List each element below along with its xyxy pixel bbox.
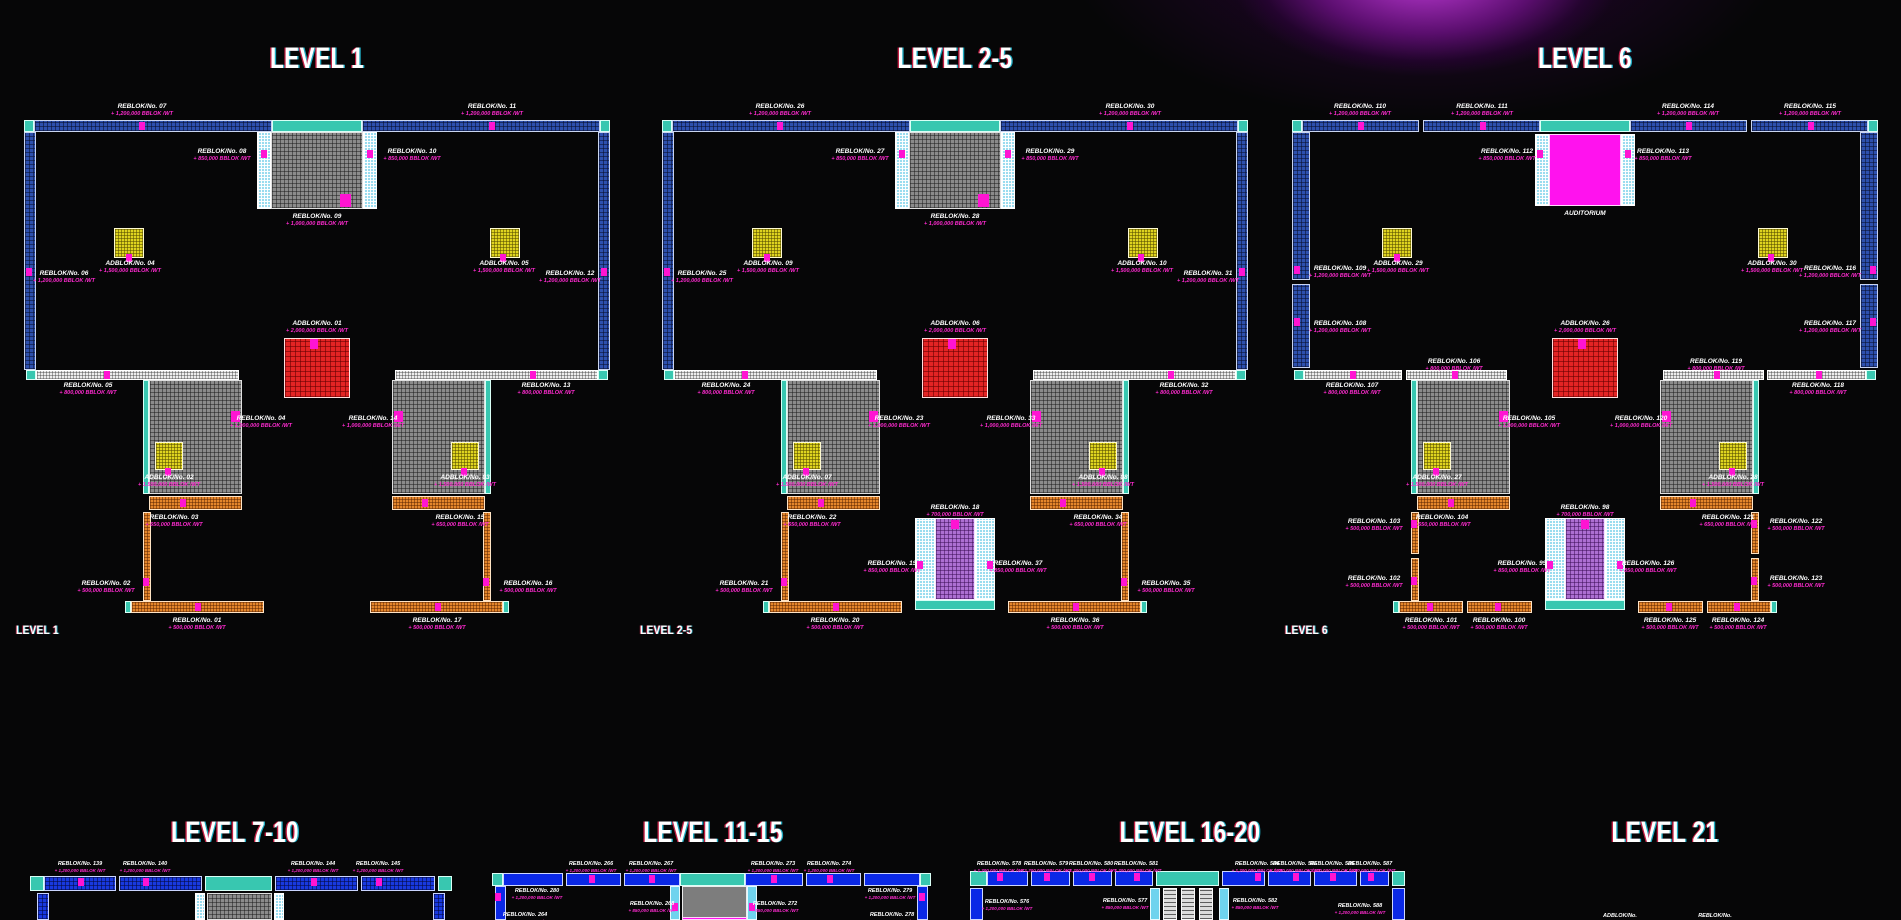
block-label: REBLOK/No. 101+ 500,000 BBLOK /WT [1371, 617, 1491, 632]
seat-block[interactable] [257, 132, 271, 209]
seat-block[interactable] [274, 893, 284, 920]
block-label-name: REBLOK/No. 98 [1525, 504, 1645, 512]
block-label: REBLOK/No. 145+ 1,200,000 BBLOK /WT [318, 861, 438, 874]
block-label-price: + 1,200,000 BBLOK /WT [82, 111, 202, 118]
block-label-name: REBLOK/No. 579 [986, 861, 1106, 868]
block-label-price: + 500,000 BBLOK /WT [1439, 625, 1559, 632]
seat-block[interactable] [1089, 442, 1117, 470]
marker-dot [777, 122, 783, 130]
marker-dot [1427, 603, 1433, 611]
block-label-name: REBLOK/No. 101 [1371, 617, 1491, 625]
block-label: ADBLOK/No. 26+ 2,000,000 BBLOK /WT [1525, 320, 1645, 335]
block-label: REBLOK/No. 111+ 1,200,000 BBLOK /WT [1422, 103, 1542, 118]
floorplan-level-1: REBLOK/No. 07+ 1,200,000 BBLOK /WTREBLOK… [24, 120, 610, 620]
seat-block[interactable] [598, 370, 608, 380]
block-label: REBLOK/No. 144+ 1,200,000 BBLOK /WT [253, 861, 373, 874]
seat-block[interactable] [1030, 496, 1123, 510]
marker-dot [26, 268, 32, 276]
seat-block[interactable] [363, 132, 377, 209]
block-label: REBLOK/No. 05+ 800,000 BBLOK /WT [28, 382, 148, 397]
block-label-name: REBLOK/No. 07 [82, 103, 202, 111]
block-label: REBLOK/No. [1655, 913, 1775, 920]
seat-block[interactable] [155, 442, 183, 470]
marker-dot [1099, 468, 1105, 476]
block-label: REBLOK/No. 11+ 1,200,000 BBLOK /WT [432, 103, 552, 118]
block-label-price: + 1,500,000 BBLOK /WT [1338, 268, 1458, 275]
block-label-price: + 500,000 BBLOK /WT [1610, 625, 1730, 632]
block-label: AUDITORIUM [1525, 210, 1645, 218]
seat-block[interactable] [1150, 888, 1160, 920]
marker-dot [771, 875, 777, 883]
marker-dot [1808, 122, 1814, 130]
block-label: ADBLOK/No. 29+ 1,500,000 BBLOK /WT [1338, 260, 1458, 275]
seat-block[interactable] [1199, 888, 1213, 920]
seat-block[interactable] [1660, 496, 1753, 510]
seat-block[interactable] [1238, 120, 1248, 132]
seat-block[interactable] [207, 893, 272, 920]
seat-block[interactable] [1031, 871, 1070, 886]
block-label-price: + 1,200,000 BBLOK /WT [1148, 278, 1268, 285]
seat-block[interactable] [1219, 888, 1229, 920]
seat-block[interactable] [119, 876, 202, 891]
marker-dot [1666, 603, 1672, 611]
block-label-name: REBLOK/No. 580 [1031, 861, 1151, 868]
marker-dot [649, 875, 655, 883]
seat-block[interactable] [1868, 120, 1878, 132]
marker-dot [1411, 577, 1417, 585]
seat-block[interactable] [1001, 132, 1015, 209]
seat-block[interactable] [1123, 380, 1129, 494]
seat-block[interactable] [495, 886, 506, 920]
seat-block[interactable] [935, 518, 975, 600]
seat-block[interactable] [1545, 518, 1565, 600]
seat-block[interactable] [1033, 370, 1236, 380]
seat-block[interactable] [1565, 518, 1605, 600]
seat-block[interactable] [361, 876, 435, 891]
seat-block[interactable] [485, 380, 491, 494]
seat-block[interactable] [1156, 871, 1219, 886]
block-label-price: + 800,000 BBLOK /WT [28, 390, 148, 397]
block-label: REBLOK/No. 26+ 1,200,000 BBLOK /WT [720, 103, 840, 118]
marker-dot [1411, 520, 1417, 528]
marker-dot [1005, 150, 1011, 158]
seat-block[interactable] [1621, 134, 1635, 206]
block-label-name: REBLOK/No. 266 [531, 861, 651, 868]
marker-dot [165, 468, 171, 476]
block-label-name: REBLOK/No. 36 [1015, 617, 1135, 625]
marker-dot [435, 603, 441, 611]
block-label-price: + 500,000 BBLOK /WT [775, 625, 895, 632]
seat-block[interactable] [1549, 134, 1621, 206]
marker-dot [1127, 122, 1133, 130]
block-label-name: REBLOK/No. 274 [769, 861, 889, 868]
seat-block[interactable] [1417, 496, 1510, 510]
seat-block[interactable] [1000, 120, 1238, 132]
block-label-name: REBLOK/No. 11 [432, 103, 552, 111]
block-label: REBLOK/No. 12+ 1,200,000 BBLOK /WT [510, 270, 630, 285]
floorplan-level-7-10: REBLOK/No. 139+ 1,200,000 BBLOK /WTREBLO… [30, 861, 455, 920]
seat-block[interactable] [1417, 380, 1510, 494]
marker-dot [1499, 411, 1508, 422]
seat-block[interactable] [864, 873, 920, 886]
seat-block[interactable] [1392, 888, 1405, 920]
seat-block[interactable] [1181, 888, 1195, 920]
block-label-price: + 1,500,000 BBLOK /WT [70, 268, 190, 275]
block-label: REBLOK/No. 576+ 1,200,000 BBLOK /WT [947, 899, 1067, 912]
block-label-name: REBLOK/No. 31 [1148, 270, 1268, 278]
marker-dot [143, 878, 149, 886]
seat-block[interactable] [149, 380, 242, 494]
marker-dot [180, 499, 186, 507]
block-label: REBLOK/No. 124+ 500,000 BBLOK /WT [1678, 617, 1798, 632]
marker-dot [126, 254, 132, 262]
marker-dot [143, 578, 149, 586]
seat-block[interactable] [1292, 284, 1310, 368]
marker-dot [1368, 873, 1374, 881]
seat-block[interactable] [987, 871, 1028, 886]
seat-block[interactable] [1751, 512, 1759, 554]
block-label-price: + 1,200,000 BBLOK /WT [1628, 111, 1748, 118]
marker-dot [1121, 578, 1127, 586]
marker-dot [500, 254, 506, 262]
marker-dot [1870, 318, 1876, 326]
block-label-name: REBLOK/No. [1655, 913, 1775, 920]
marker-dot [827, 875, 833, 883]
block-label: REBLOK/No. 278+ 1,200,000 BBLOK /WT [832, 912, 952, 920]
seat-block[interactable] [787, 380, 880, 494]
block-label-name: REBLOK/No. 111 [1422, 103, 1542, 111]
seat-block[interactable] [975, 518, 995, 600]
marker-dot [781, 578, 787, 586]
block-label-name: REBLOK/No. 121 [1668, 514, 1788, 522]
block-label-price: + 1,200,000 BBLOK /WT [20, 868, 140, 874]
seat-block[interactable] [1268, 871, 1311, 886]
marker-dot [1547, 561, 1553, 569]
seat-block[interactable] [793, 442, 821, 470]
block-label-price: + 500,000 BBLOK /WT [1678, 625, 1798, 632]
block-label-price: + 1,500,000 BBLOK /WT [708, 268, 828, 275]
seat-block[interactable] [195, 893, 205, 920]
marker-dot [1168, 371, 1174, 379]
marker-dot [1394, 254, 1400, 262]
seat-block[interactable] [395, 370, 598, 380]
marker-dot [1537, 150, 1543, 158]
block-label: REBLOK/No. 125+ 500,000 BBLOK /WT [1610, 617, 1730, 632]
block-label-name: REBLOK/No. 17 [377, 617, 497, 625]
block-label: ADBLOK/No. 09+ 1,500,000 BBLOK /WT [708, 260, 828, 275]
seat-block[interactable] [1605, 518, 1625, 600]
block-label-name: REBLOK/No. 264 [465, 912, 585, 919]
block-label-price: + 500,000 BBLOK /WT [137, 625, 257, 632]
block-label-price: + 800,000 BBLOK /WT [666, 390, 786, 397]
block-label-name: REBLOK/No. 12 [510, 270, 630, 278]
floorplan-level-2-5: REBLOK/No. 26+ 1,200,000 BBLOK /WTREBLOK… [662, 120, 1248, 620]
block-label-price: + 1,200,000 BBLOK /WT [253, 868, 373, 874]
marker-dot [1729, 468, 1735, 476]
block-label-price: + 1,200,000 BBLOK /WT [1750, 111, 1870, 118]
marker-dot [764, 254, 770, 262]
block-label-name: REBLOK/No. 28 [895, 213, 1015, 221]
seat-block[interactable] [1753, 380, 1759, 494]
level-title: LEVEL 7-10 [171, 816, 299, 850]
seat-block[interactable] [483, 512, 491, 601]
seat-block[interactable] [24, 120, 34, 132]
block-label-name: REBLOK/No. 114 [1628, 103, 1748, 111]
seat-block[interactable] [26, 370, 36, 380]
marker-dot [311, 878, 317, 886]
seat-block[interactable] [806, 873, 861, 886]
seat-block[interactable] [1535, 134, 1549, 206]
seat-block[interactable] [600, 120, 610, 132]
block-label-name: REBLOK/No. 144 [253, 861, 373, 868]
seat-block[interactable] [1236, 370, 1246, 380]
seat-block[interactable] [1392, 871, 1405, 886]
marker-dot [1138, 254, 1144, 262]
block-label-name: REBLOK/No. 267 [591, 861, 711, 868]
block-label-name: REBLOK/No. 119 [1656, 358, 1776, 366]
seat-block[interactable] [1292, 132, 1310, 280]
block-label-price: + 500,000 BBLOK /WT [1015, 625, 1135, 632]
block-label: REBLOK/No. 30+ 1,200,000 BBLOK /WT [1070, 103, 1190, 118]
seat-block[interactable] [1423, 442, 1451, 470]
marker-dot [997, 873, 1003, 881]
seat-block[interactable] [1236, 132, 1248, 370]
marker-dot [589, 875, 595, 883]
block-label-name: REBLOK/No. 32 [1124, 382, 1244, 390]
seat-block[interactable] [787, 496, 880, 510]
marker-dot [869, 411, 878, 422]
marker-dot [1358, 122, 1364, 130]
block-label-price: + 1,500,000 BBLOK /WT [1082, 268, 1202, 275]
block-label: REBLOK/No. 28+ 1,000,000 BBLOK /WT [895, 213, 1015, 228]
seat-block[interactable] [34, 120, 272, 132]
block-label-name: REBLOK/No. 584 [1197, 861, 1317, 868]
marker-dot [139, 122, 145, 130]
marker-dot [1448, 499, 1454, 507]
seat-block[interactable] [920, 873, 931, 886]
marker-dot [261, 150, 267, 158]
seat-block[interactable] [915, 518, 935, 600]
block-label-name: REBLOK/No. 15 [400, 514, 520, 522]
seat-block[interactable] [205, 876, 272, 891]
block-label: REBLOK/No. 18+ 700,000 BBLOK /WT [895, 504, 1015, 519]
block-label-price: + 500,000 BBLOK /WT [1371, 625, 1491, 632]
block-label-name: REBLOK/No. 25 [642, 270, 762, 278]
block-label: REBLOK/No. 115+ 1,200,000 BBLOK /WT [1750, 103, 1870, 118]
floorplan-level-6: REBLOK/No. 110+ 1,200,000 BBLOK /WTREBLO… [1292, 120, 1878, 620]
block-label: ADBLOK/No. 06+ 2,000,000 BBLOK /WT [895, 320, 1015, 335]
block-label-name: REBLOK/No. 06 [4, 270, 124, 278]
block-label-name: REBLOK/No. 278 [832, 912, 952, 919]
marker-dot [78, 878, 84, 886]
block-label-price: + 1,500,000 BBLOK /WT [444, 268, 564, 275]
marker-dot [310, 339, 318, 349]
seat-block[interactable] [1660, 380, 1753, 494]
marker-dot [818, 499, 824, 507]
block-label-price: + 1,200,000 BBLOK /WT [85, 868, 205, 874]
block-label-price: + 1,200,000 BBLOK /WT [1422, 111, 1542, 118]
marker-dot [664, 268, 670, 276]
corner-level-label: LEVEL 2-5 [640, 624, 692, 637]
block-label-price: + 1,200,000 BBLOK /WT [4, 278, 124, 285]
block-label-name: REBLOK/No. 13 [486, 382, 606, 390]
seat-block[interactable] [910, 120, 1000, 132]
seat-block[interactable] [895, 132, 909, 209]
seat-block[interactable] [24, 132, 36, 370]
seat-block[interactable] [503, 601, 509, 613]
marker-dot [1073, 603, 1079, 611]
block-label-price: + 800,000 BBLOK /WT [1758, 390, 1878, 397]
seat-block[interactable] [915, 600, 995, 610]
block-label: REBLOK/No. 20+ 500,000 BBLOK /WT [775, 617, 895, 632]
block-label: ADBLOK/No. 30+ 1,500,000 BBLOK /WT [1712, 260, 1832, 275]
marker-dot [1751, 577, 1757, 585]
seat-block[interactable] [598, 132, 610, 370]
marker-dot [1734, 603, 1740, 611]
block-label: REBLOK/No. 17+ 500,000 BBLOK /WT [377, 617, 497, 632]
marker-dot [461, 468, 467, 476]
seat-block[interactable] [392, 496, 485, 510]
marker-dot [749, 903, 755, 911]
marker-dot [1581, 520, 1589, 529]
marker-dot [1032, 411, 1041, 422]
seat-block[interactable] [781, 512, 789, 601]
marker-dot [601, 268, 607, 276]
seat-block[interactable] [1540, 120, 1630, 132]
block-label: REBLOK/No. 264+ 1,200,000 BBLOK /WT [465, 912, 585, 920]
seat-block[interactable] [272, 120, 362, 132]
marker-dot [1255, 873, 1261, 881]
block-label-price: + 800,000 BBLOK /WT [1292, 390, 1412, 397]
block-label-price: + 650,000 BBLOK /WT [1668, 522, 1788, 529]
block-label-name: REBLOK/No. 01 [137, 617, 257, 625]
block-label: REBLOK/No. 13+ 800,000 BBLOK /WT [486, 382, 606, 397]
block-label-price: + 650,000 BBLOK /WT [114, 522, 234, 529]
seat-block[interactable] [143, 512, 151, 601]
marker-dot [919, 893, 925, 901]
block-label-price: + 1,200,000 BBLOK /WT [947, 906, 1067, 912]
block-label: REBLOK/No. 118+ 800,000 BBLOK /WT [1758, 382, 1878, 397]
block-label-name: REBLOK/No. 106 [1394, 358, 1514, 366]
seat-block[interactable] [674, 370, 877, 380]
block-label-name: REBLOK/No. 139 [20, 861, 140, 868]
seat-block[interactable] [970, 871, 987, 886]
seat-block[interactable] [451, 442, 479, 470]
marker-dot [948, 339, 956, 349]
seat-block[interactable] [433, 893, 445, 920]
seat-block[interactable] [1294, 370, 1304, 380]
seat-block[interactable] [492, 873, 503, 886]
seat-block[interactable] [970, 888, 983, 920]
seat-block[interactable] [680, 873, 745, 886]
seat-block[interactable] [1411, 512, 1419, 554]
block-label-name: REBLOK/No. 18 [895, 504, 1015, 512]
block-label: ADBLOK/No. [1560, 913, 1680, 920]
seat-block[interactable] [392, 380, 485, 494]
seat-block[interactable] [1545, 600, 1625, 610]
marker-dot [1617, 561, 1623, 569]
block-label-name: ADBLOK/No. 06 [895, 320, 1015, 328]
marker-dot [1294, 266, 1300, 274]
seat-block[interactable] [917, 886, 928, 920]
block-label-name: REBLOK/No. 107 [1292, 382, 1412, 390]
block-label: REBLOK/No. 09+ 1,000,000 BBLOK /WT [257, 213, 377, 228]
block-label: REBLOK/No. 114+ 1,200,000 BBLOK /WT [1628, 103, 1748, 118]
seat-block[interactable] [438, 876, 452, 891]
block-label: REBLOK/No. 01+ 500,000 BBLOK /WT [137, 617, 257, 632]
seat-block[interactable] [1860, 284, 1878, 368]
seat-block[interactable] [1360, 871, 1389, 886]
marker-dot [833, 603, 839, 611]
block-label-price: + 1,200,000 BBLOK /WT [1300, 111, 1420, 118]
block-label-name: REBLOK/No. 110 [1300, 103, 1420, 111]
block-label-name: REBLOK/No. 125 [1610, 617, 1730, 625]
level-title: LEVEL 1 [270, 42, 364, 76]
block-label-name: REBLOK/No. 576 [947, 899, 1067, 906]
seat-block[interactable] [1030, 380, 1123, 494]
block-label-price: + 500,000 BBLOK /WT [377, 625, 497, 632]
seat-block[interactable] [682, 886, 747, 920]
seat-block[interactable] [37, 893, 49, 920]
seat-block[interactable] [1141, 601, 1147, 613]
block-label: REBLOK/No. 15+ 650,000 BBLOK /WT [400, 514, 520, 529]
seat-block[interactable] [1163, 888, 1177, 920]
seat-block[interactable] [362, 120, 600, 132]
marker-dot [340, 194, 351, 207]
marker-dot [1089, 873, 1095, 881]
block-label-name: REBLOK/No. 586 [1272, 861, 1392, 868]
seat-block[interactable] [1121, 512, 1129, 601]
seat-block[interactable] [1866, 370, 1876, 380]
block-label-price: + 1,200,000 BBLOK /WT [318, 868, 438, 874]
block-label: REBLOK/No. 03+ 650,000 BBLOK /WT [114, 514, 234, 529]
block-label-name: AUDITORIUM [1525, 210, 1645, 218]
marker-dot [899, 150, 905, 158]
marker-dot [489, 122, 495, 130]
marker-dot [1714, 371, 1720, 379]
block-label: REBLOK/No. 36+ 500,000 BBLOK /WT [1015, 617, 1135, 632]
marker-dot [231, 411, 240, 422]
seat-block[interactable] [149, 496, 242, 510]
block-label-name: REBLOK/No. 20 [775, 617, 895, 625]
block-label-name: REBLOK/No. 582 [1195, 898, 1315, 905]
seat-block[interactable] [1719, 442, 1747, 470]
seat-block[interactable] [662, 132, 674, 370]
marker-dot [917, 561, 923, 569]
block-label-price: + 800,000 BBLOK /WT [1124, 390, 1244, 397]
block-label-price: + 850,000 BBLOK /WT [1195, 905, 1315, 911]
floorplan-level-11-15: REBLOK/No. 266+ 1,200,000 BBLOK /WTREBLO… [492, 861, 931, 920]
seat-block[interactable] [1860, 132, 1878, 280]
seat-block[interactable] [664, 370, 674, 380]
marker-dot [1690, 499, 1696, 507]
seat-block[interactable] [672, 120, 910, 132]
seat-block[interactable] [1771, 601, 1777, 613]
seat-block[interactable] [1292, 120, 1302, 132]
block-label-price: + 1,200,000 BBLOK /WT [720, 111, 840, 118]
seat-block[interactable] [36, 370, 239, 380]
block-label: REBLOK/No. 100+ 500,000 BBLOK /WT [1439, 617, 1559, 632]
block-label: REBLOK/No. 107+ 800,000 BBLOK /WT [1292, 382, 1412, 397]
marker-dot [483, 578, 489, 586]
seat-block[interactable] [503, 873, 563, 886]
block-label-price: + 1,000,000 BBLOK /WT [257, 221, 377, 228]
seat-block[interactable] [662, 120, 672, 132]
block-label-price: + 1,500,000 BBLOK /WT [1712, 268, 1832, 275]
marker-dot [1751, 520, 1757, 528]
block-label: REBLOK/No. 31+ 1,200,000 BBLOK /WT [1148, 270, 1268, 285]
seat-block[interactable] [30, 876, 44, 891]
